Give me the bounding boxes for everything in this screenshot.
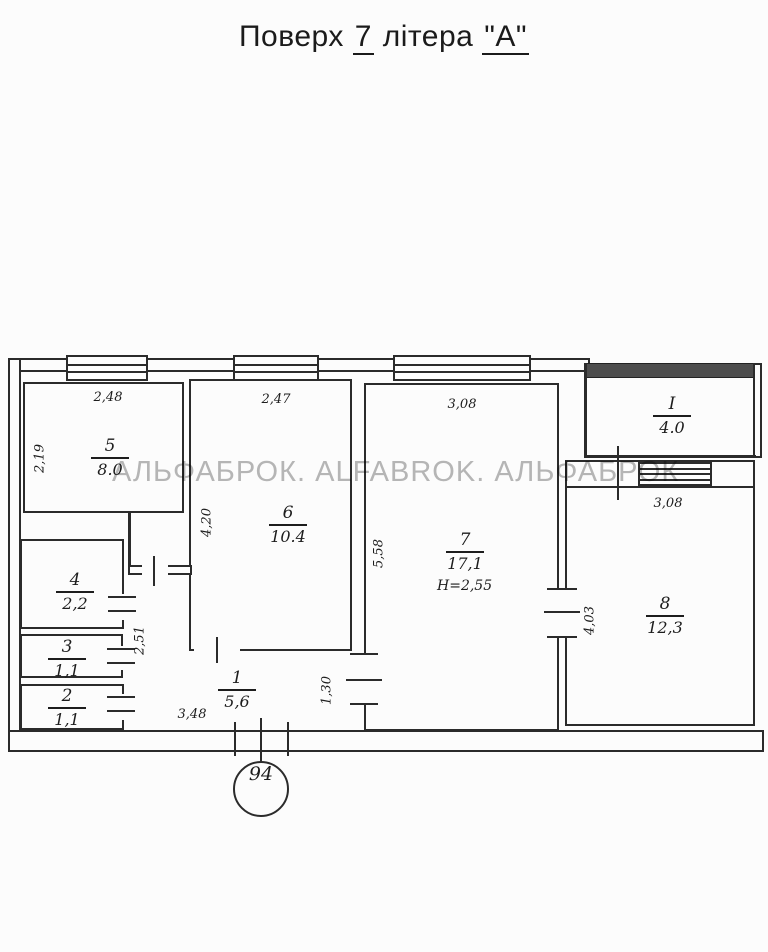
hall-door-opening — [142, 563, 168, 577]
hall-door-tick — [153, 556, 155, 586]
watermark-text: АЛЬФАБРОК. ALFABROK. АЛЬФАБРОК — [112, 456, 679, 489]
room-4-door-tick-top — [108, 596, 136, 598]
room-7-height-note: H=2,55 — [437, 578, 492, 594]
room-4-door-tick-bottom — [108, 610, 136, 612]
room-area: 4.0 — [647, 418, 697, 437]
dim-room5-width: 2,48 — [88, 390, 128, 405]
room-7-window — [393, 355, 531, 381]
title-building-letter: "А" — [482, 20, 529, 55]
balcony-wall-right — [753, 363, 762, 458]
dim-room7-width: 3,08 — [442, 397, 482, 412]
room-3-label: 3 1,1 — [42, 637, 92, 680]
room-number: 1 — [218, 668, 256, 691]
room-number: 3 — [48, 637, 86, 660]
room-7-8-door-tick-mid — [544, 611, 580, 613]
loggia-label: I 4.0 — [647, 394, 697, 437]
dim-hall-depth: 2,51 — [133, 621, 148, 661]
window-pane — [395, 364, 529, 366]
window-pane — [68, 364, 146, 366]
title-middle: літера — [383, 20, 474, 53]
dim-room6-depth: 4,20 — [200, 503, 215, 543]
room-number: 4 — [56, 570, 94, 593]
page-title: Поверх 7 літера "А" — [0, 20, 768, 54]
title-prefix: Поверх — [239, 20, 344, 53]
room-7-label: 7 17,1 — [440, 530, 490, 573]
balcony-railing — [585, 363, 756, 378]
room-7-door-tick-mid — [346, 679, 382, 681]
room-7-8-door-tick-top — [547, 588, 577, 590]
room-7-8-door-opening — [555, 590, 569, 638]
room-area: 17,1 — [440, 554, 490, 573]
room-2-door-tick-bottom — [107, 710, 135, 712]
room-4-label: 4 2,2 — [50, 570, 100, 613]
entrance-door-tick-right — [287, 722, 289, 756]
room-number: 2 — [48, 686, 86, 709]
room-6-window — [233, 355, 319, 381]
room-area: 1,1 — [42, 661, 92, 680]
room-3-door-tick-top — [107, 648, 135, 650]
dim-room7-depth: 5,58 — [372, 534, 387, 574]
room-area: 2,2 — [50, 594, 100, 613]
dim-room8-depth: 4,03 — [583, 601, 598, 641]
dim-room8-width: 3,08 — [648, 496, 688, 511]
room-area: 10.4 — [263, 527, 313, 546]
dim-door-width: 1,30 — [320, 671, 335, 711]
room-number: I — [653, 394, 691, 417]
room-area: 12,3 — [640, 618, 690, 637]
room-6-door-tick — [216, 637, 218, 663]
entrance-door-tick-left — [234, 722, 236, 756]
room-8-label: 8 12,3 — [640, 594, 690, 637]
entrance-door-tick-center — [260, 718, 262, 762]
apartment-number-circle: 94 — [233, 761, 289, 817]
dim-corridor-width: 3,48 — [172, 707, 212, 722]
room-area: 5,6 — [212, 692, 262, 711]
room-number: 6 — [269, 503, 307, 526]
floor-plan-page: Поверх 7 літера "А" — [0, 0, 768, 952]
balcony-wall-left — [584, 363, 587, 458]
room-number: 8 — [646, 594, 684, 617]
room-6-label: 6 10.4 — [263, 503, 313, 546]
outer-wall-bottom — [8, 730, 764, 752]
hall-nook-wall-vertical — [128, 511, 131, 569]
room-3-door-tick-bottom — [107, 662, 135, 664]
room-7-door-tick-bottom — [350, 703, 378, 705]
room-area: 1,1 — [42, 710, 92, 729]
window-pane — [395, 371, 529, 373]
room-1-label: 1 5,6 — [212, 668, 262, 711]
room-2-label: 2 1,1 — [42, 686, 92, 729]
dim-room5-depth: 2,19 — [33, 439, 48, 479]
window-pane — [235, 364, 317, 366]
room-7-8-door-tick-bottom — [547, 636, 577, 638]
room-2-door-tick-top — [107, 696, 135, 698]
window-pane — [68, 371, 146, 373]
title-floor-number: 7 — [353, 20, 374, 55]
room-5-window — [66, 355, 148, 381]
dim-room6-width: 2,47 — [256, 392, 296, 407]
room-number: 7 — [446, 530, 484, 553]
window-pane — [235, 371, 317, 373]
room-7-door-tick-top — [350, 653, 378, 655]
